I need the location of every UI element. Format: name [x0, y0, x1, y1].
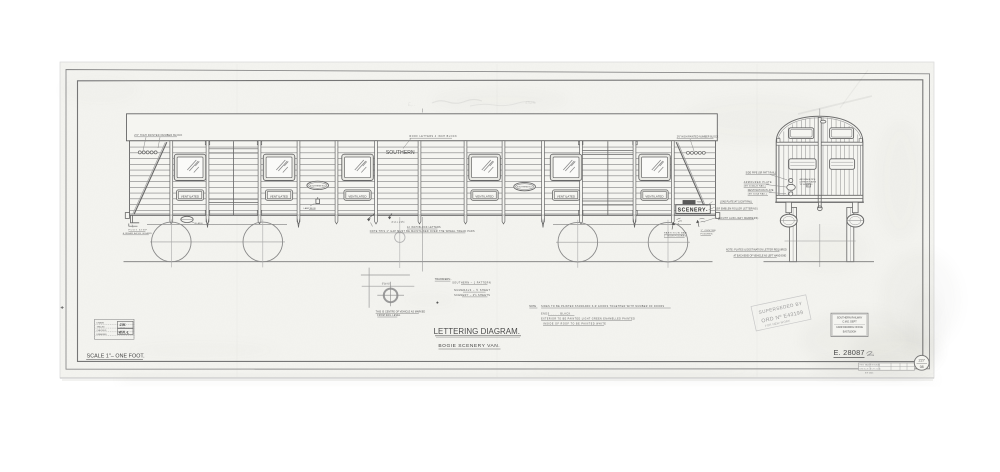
svg-text:FROM RAIL LEVEL: FROM RAIL LEVEL — [377, 314, 401, 317]
svg-text:FIGURES: FIGURES — [701, 234, 714, 236]
svg-text:(SR EMBLEM ROLLER LETTERING): (SR EMBLEM ROLLER LETTERING) — [716, 209, 758, 211]
svg-text:SOUTHERN – 1 PATTERN: SOUTHERN – 1 PATTERN — [452, 282, 491, 285]
svg-text:DESTINATION PLATE: DESTINATION PLATE — [748, 189, 774, 192]
svg-text:& THESE PLATES: & THESE PLATES — [800, 181, 817, 184]
svg-text:BOGIE SCENERY VAN.: BOGIE SCENERY VAN. — [438, 343, 500, 349]
svg-text:VENTILATED: VENTILATED — [348, 194, 366, 198]
svg-text:VENTILATED: VENTILATED — [557, 194, 575, 198]
svg-text:1″ CENTRE: 1″ CENTRE — [701, 230, 717, 232]
svg-text:AT EACH END OF VEHICLE AS LEFT: AT EACH END OF VEHICLE AS LEFT HAND END — [734, 255, 787, 258]
svg-text:CARR DRAWING OFFICE: CARR DRAWING OFFICE — [836, 326, 863, 329]
svg-text:FIRST MADE FOR E28084: FIRST MADE FOR E28084 — [860, 364, 881, 367]
svg-text:4525: 4525 — [525, 100, 536, 105]
svg-text:W.N.·L: W.N.·L — [119, 331, 129, 335]
svg-text:EXAMINED: EXAMINED — [97, 333, 108, 336]
svg-text:TRANSFERS:-: TRANSFERS:- — [435, 278, 452, 281]
svg-text:ROOF LETTERS 4 INCH BLOCK: ROOF LETTERS 4 INCH BLOCK — [410, 136, 458, 138]
svg-text:(SR 505A RAIL): (SR 505A RAIL) — [748, 192, 767, 195]
svg-text:NOTE THIS 1″ GAP MUST BE MAIN: NOTE THIS 1″ GAP MUST BE MAINTAINED OVER… — [370, 230, 475, 233]
svg-text:NOTE: PLATES & DESTINATION LE: NOTE: PLATES & DESTINATION LETTER REQUIR… — [726, 249, 787, 252]
svg-text:INSIDE OF ROOF TO BE PAINTED W: INSIDE OF ROOF TO BE PAINTED WHITE — [543, 323, 606, 326]
svg-text:1″ HIGH FIGURES: 1″ HIGH FIGURES — [664, 236, 686, 238]
svg-text:SOUTHERN·RLY: SOUTHERN·RLY — [517, 187, 533, 189]
svg-text:SIDES TO BE PAINTED STANDARD: SIDES TO BE PAINTED STANDARD S.R GOODS T… — [541, 305, 664, 308]
svg-text:2'6″ HIGH PAINTED NUMBER BLOCK: 2'6″ HIGH PAINTED NUMBER BLOCK — [677, 136, 719, 139]
svg-text:227: 227 — [919, 359, 925, 363]
svg-text:6'(±¼): 6'(±¼) — [382, 282, 390, 286]
svg-text:LOAD PLATE (4T 10CWT RAIL): LOAD PLATE (4T 10CWT RAIL) — [720, 201, 753, 204]
svg-text:DRG No·28 · E·C·H· 4·2·36: DRG No·28 · E·C·H· 4·2·36 — [860, 368, 881, 370]
svg-text:SIDE PIPE (SR PATT RAIL): SIDE PIPE (SR PATT RAIL) — [746, 172, 776, 175]
svg-text:C.M.E. DEPT: C.M.E. DEPT — [842, 321, 857, 324]
svg-text:E. 28087: E. 28087 — [834, 348, 865, 357]
svg-text:VENTILATED: VENTILATED — [181, 194, 199, 198]
svg-text:DRAWN: DRAWN — [97, 322, 105, 325]
svg-text:CHECKED: CHECKED — [97, 330, 107, 332]
svg-text:AIR BRAKE PIPE: AIR BRAKE PIPE — [800, 178, 816, 181]
svg-text:OIL AXLE: OIL AXLE — [194, 222, 203, 225]
svg-text:VENTILATED: VENTILATED — [475, 194, 493, 198]
svg-text:NUMERALS – ½ SHEET: NUMERALS – ½ SHEET — [454, 288, 490, 292]
svg-text:SOUTHERN: SOUTHERN — [386, 150, 415, 156]
svg-text:THIS IS CENTRE OF VEHICLE AS M: THIS IS CENTRE OF VEHICLE AS MARKED — [376, 311, 426, 314]
svg-text:& REAR AXLE GUARD: & REAR AXLE GUARD — [123, 232, 153, 235]
svg-text:VENTILATED: VENTILATED — [270, 194, 288, 198]
svg-text:NOTE: NOTE — [529, 305, 536, 308]
svg-text:S·R· 4615: S·R· 4615 — [865, 372, 873, 374]
svg-text:12 INCH BLOCK LETTERS: 12 INCH BLOCK LETTERS — [407, 227, 441, 229]
svg-text:(SR 505A+B RAIL): (SR 505A+B RAIL) — [744, 184, 766, 187]
svg-text:SOUTHERN RAILWAY: SOUTHERN RAILWAY — [837, 317, 863, 320]
svg-text:(SOUTH AUXILIARY MEMBERS): (SOUTH AUXILIARY MEMBERS) — [718, 217, 759, 220]
svg-text:ENDS . . . . BLACK: ENDS . . . . BLACK — [541, 312, 571, 315]
svg-text:ARMOURED PLATE: ARMOURED PLATE — [744, 181, 772, 184]
svg-text:VENTILATED: VENTILATED — [645, 194, 663, 198]
svg-text:PARTITION BAR: PARTITION BAR — [664, 231, 687, 234]
svg-text:FOOT STEP: FOOT STEP — [129, 229, 148, 231]
svg-text:LETTERING DIAGRAM.: LETTERING DIAGRAM. — [434, 327, 520, 336]
svg-text:J.W.: J.W. — [120, 323, 127, 327]
svg-text:EASTLEIGH: EASTLEIGH — [843, 331, 857, 334]
svg-text:£,..: £,.. — [408, 102, 415, 108]
svg-text:SCENERY-: SCENERY- — [678, 208, 708, 214]
svg-text:SOUTHERN·RLY: SOUTHERN·RLY — [310, 185, 326, 187]
svg-text:2'6″ HIGH PAINTED NUMBER BLOCK: 2'6″ HIGH PAINTED NUMBER BLOCK — [134, 134, 182, 137]
svg-text:EXTERIOR TO BE PAINTED LIGHT G: EXTERIOR TO BE PAINTED LIGHT GREEN ENAME… — [541, 318, 635, 321]
svg-text:SCENERY – 2½ SHEETS: SCENERY – 2½ SHEETS — [454, 293, 490, 297]
svg-text:TRACED: TRACED — [97, 325, 106, 328]
svg-text:6'-0 x 1'0½: 6'-0 x 1'0½ — [392, 220, 406, 224]
svg-text:08: 08 — [920, 365, 924, 369]
svg-text:SCALE 1″– ONE FOOT.: SCALE 1″– ONE FOOT. — [87, 354, 145, 360]
